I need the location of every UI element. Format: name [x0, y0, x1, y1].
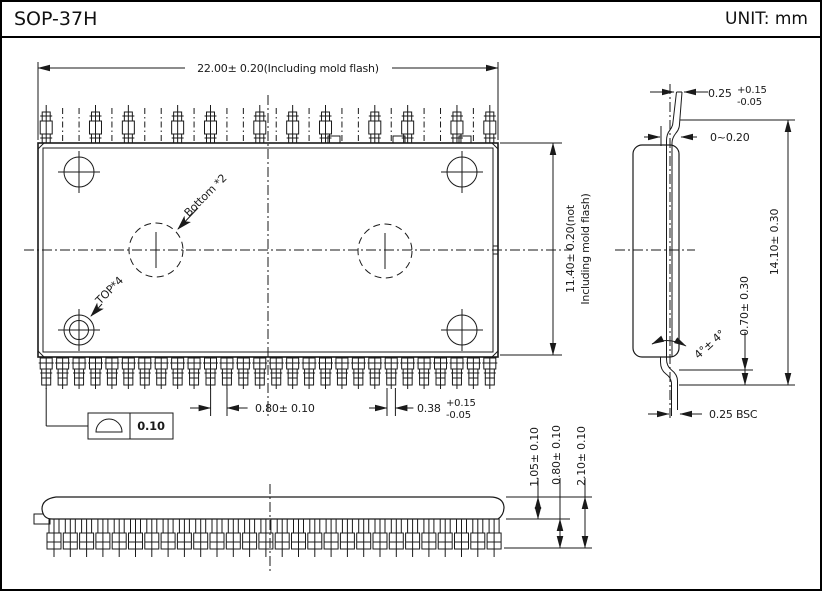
dim-lead-tip-tol-minus: -0.05	[737, 97, 762, 108]
dim-tip-bsc: 0.25 BSC	[709, 408, 758, 421]
package-name: SOP-37H	[14, 8, 97, 30]
dim-foot-length: 0.70± 0.30	[738, 276, 751, 336]
dim-lead-width-tol-plus: +0.15	[446, 398, 476, 409]
dim-standoff: 0~0.20	[710, 131, 750, 144]
dim-lead-tip: 0.25	[708, 87, 732, 100]
dim-lead-width-tol-minus: -0.05	[446, 410, 471, 421]
dim-overall-height: 14.10± 0.30	[768, 209, 781, 276]
dim-lead-tip-tol-plus: +0.15	[737, 85, 767, 96]
title-block: SOP-37H UNIT: mm	[2, 2, 820, 38]
top-view: 22.00± 0.20(Including mold flash)	[24, 62, 592, 439]
drawing-sheet: SOP-37H UNIT: mm	[0, 0, 822, 591]
dim-package-height-line2: Including mold flash)	[579, 193, 592, 304]
profile-surface-icon	[96, 419, 122, 432]
dim-lead-angle: 4°± 4°	[692, 327, 728, 361]
dim-package-width: 22.00± 0.20(Including mold flash)	[197, 62, 379, 75]
dim-lead-pitch: 0.80± 0.10	[255, 402, 315, 415]
coplanarity-value: 0.10	[137, 419, 165, 433]
side-view: 0.25 +0.15 -0.05 0~0.20 14.10± 0.30 0.70…	[615, 84, 795, 421]
dim-body-thickness: 1.05± 0.10	[528, 427, 541, 487]
technical-drawing: 22.00± 0.20(Including mold flash)	[2, 38, 820, 589]
dim-lead-height: 0.80± 0.10	[550, 425, 563, 485]
dim-lead-width: 0.38	[417, 402, 441, 415]
front-body-outline	[42, 497, 504, 519]
coplanarity-frame: 0.10	[46, 388, 173, 439]
dim-package-height-line1: 11.40± 0.20(not	[564, 204, 577, 293]
front-view: 1.05± 0.10 0.80± 0.10 2.10± 0.10	[34, 425, 592, 573]
unit-label: UNIT: mm	[725, 9, 808, 29]
dim-total-height: 2.10± 0.10	[575, 426, 588, 486]
